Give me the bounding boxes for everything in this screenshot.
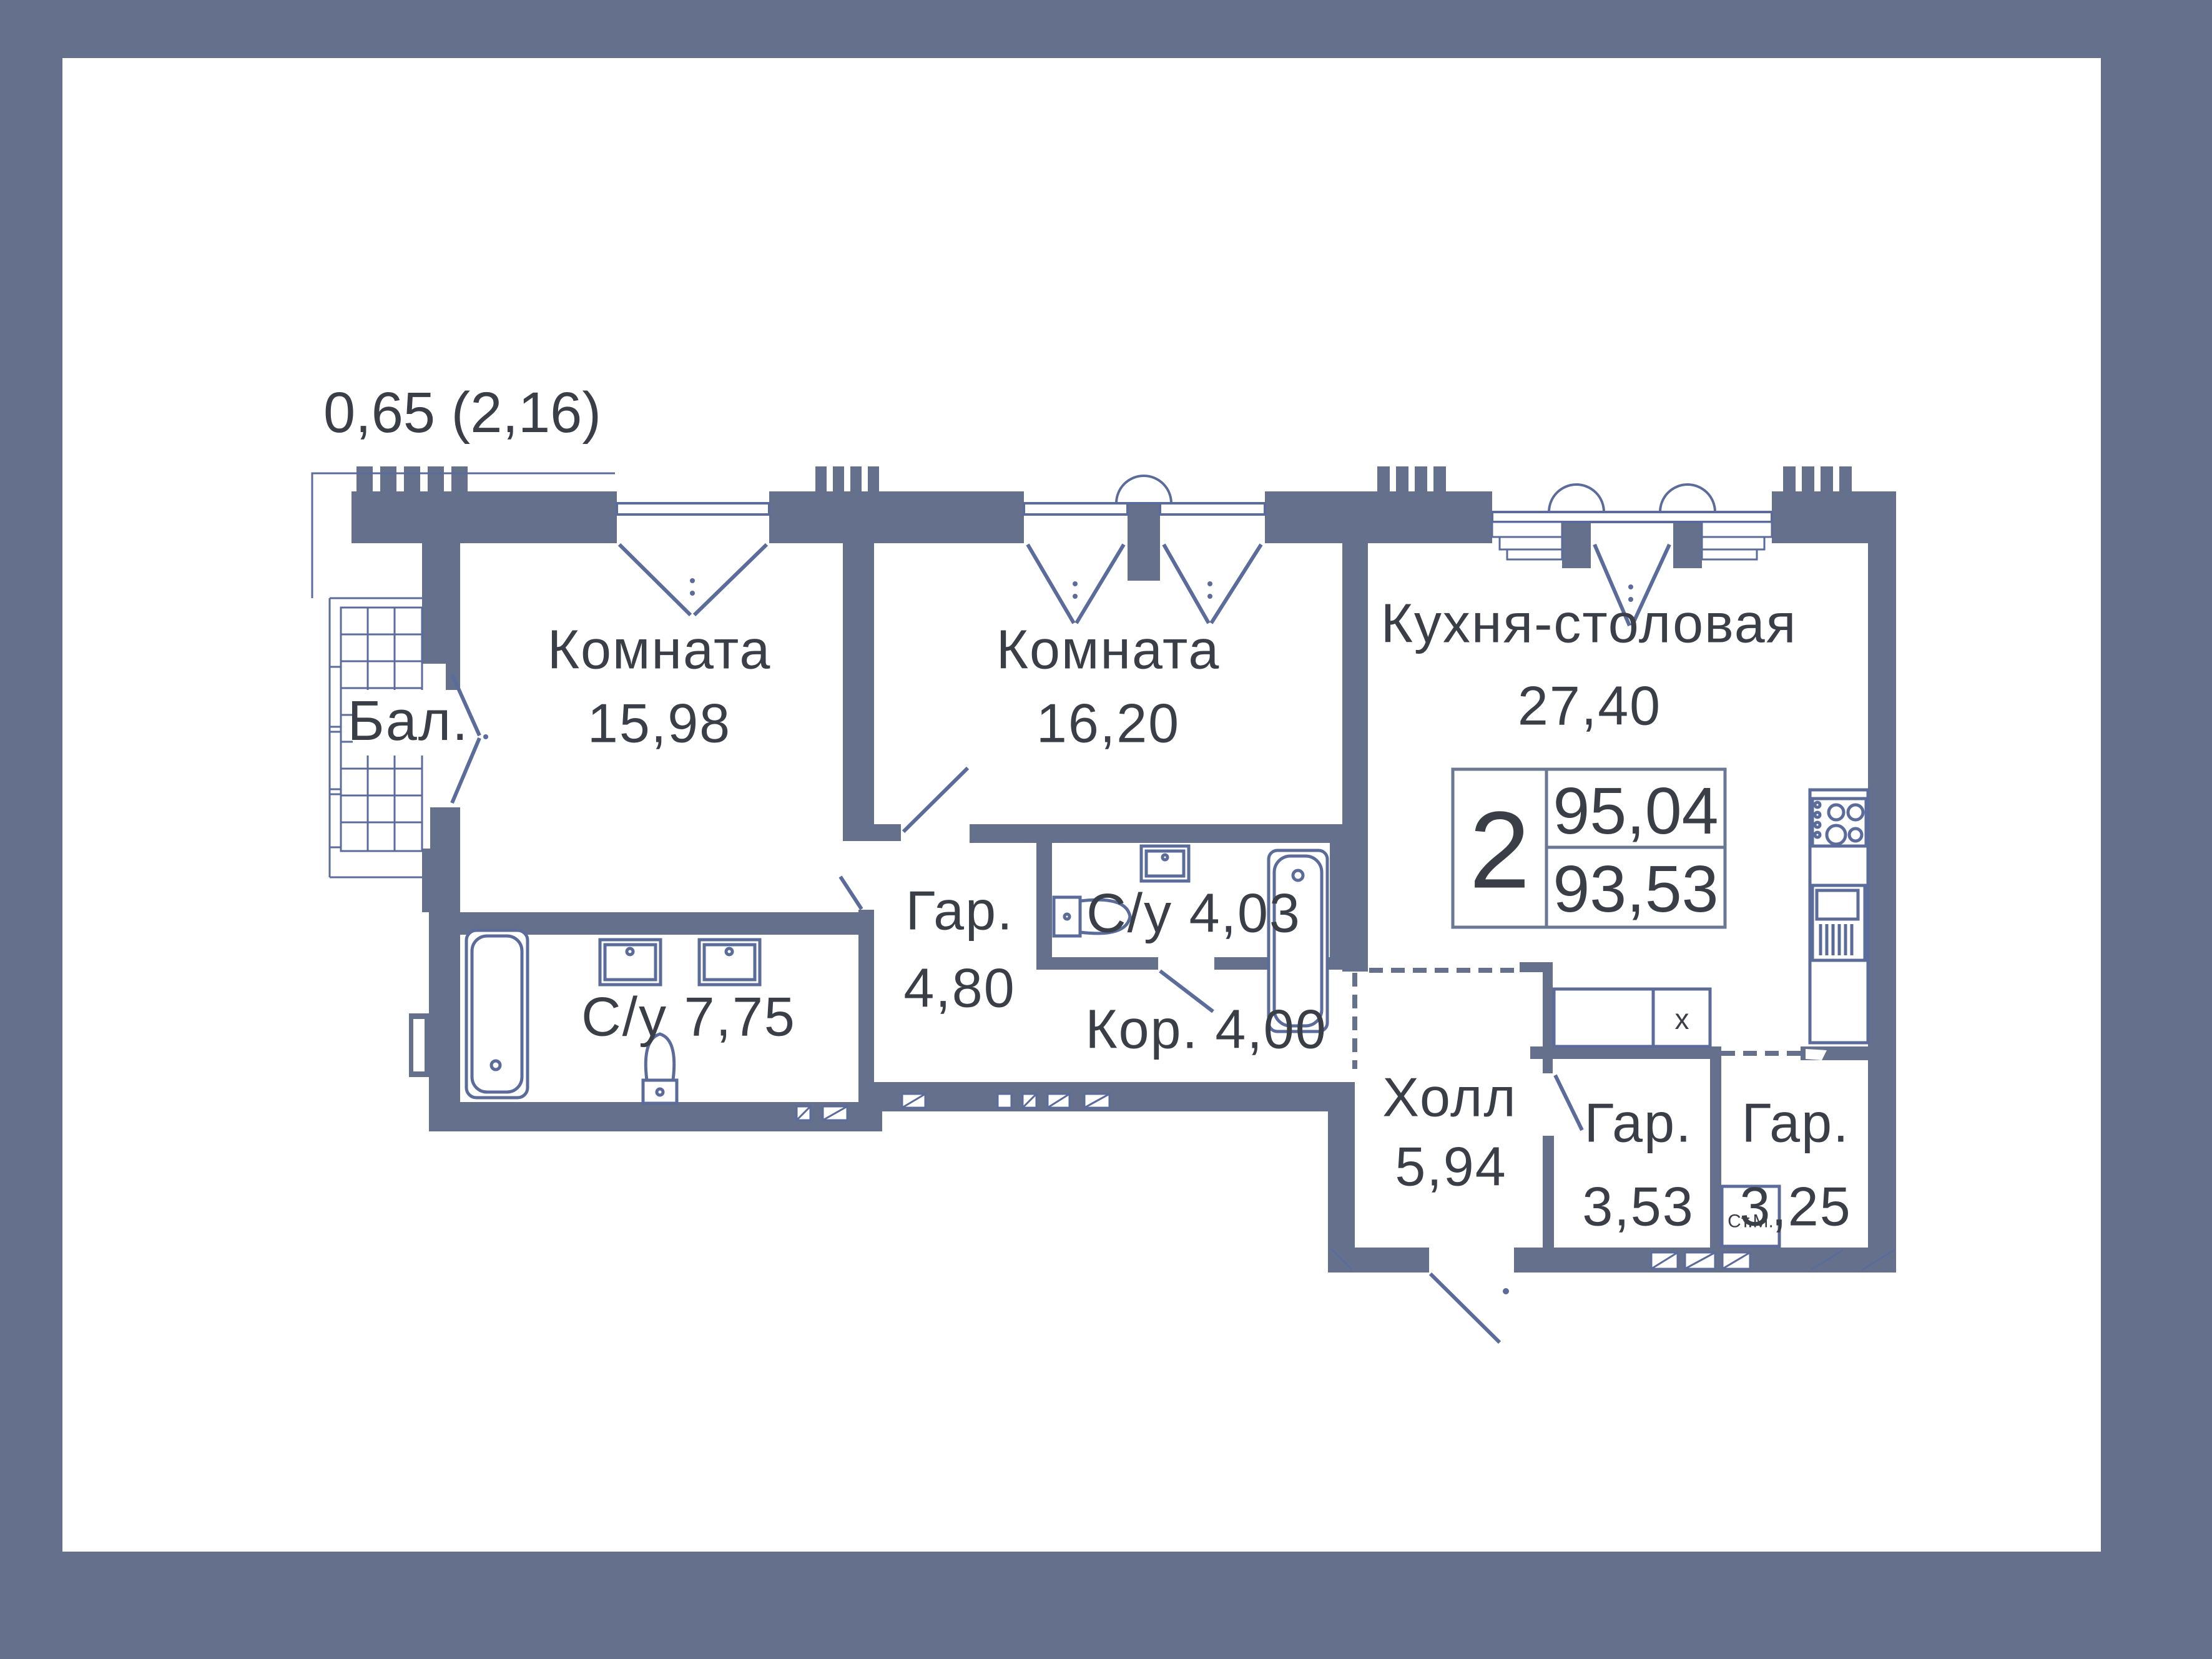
floor-plan-page: 2 95,04 93,53 0,65 (2,16) Бал. Комната 1…: [0, 0, 2212, 1659]
stat-living-area: 93,53: [1553, 852, 1718, 926]
balcony-label: Бал.: [348, 690, 469, 752]
floor-plan-canvas: 2 95,04 93,53 0,65 (2,16) Бал. Комната 1…: [0, 0, 2212, 1659]
bath-large-label: С/у 7,75: [581, 986, 796, 1048]
stat-total-area: 95,04: [1553, 774, 1718, 848]
bathtub-icon: [466, 930, 528, 1098]
room1-label: Комната: [548, 619, 772, 681]
kitchen-area: 27,40: [1518, 675, 1661, 737]
room2-label: Комната: [996, 619, 1221, 681]
kitchen-label: Кухня-столовая: [1381, 593, 1797, 654]
window-room1: [617, 503, 769, 514]
wardrobe3-label: Гар.: [1741, 1092, 1849, 1154]
wardrobe1-label: Гар.: [905, 880, 1013, 942]
hall-area: 5,94: [1395, 1136, 1507, 1198]
wardrobe2-label: Гар.: [1584, 1092, 1692, 1154]
room1-area: 15,98: [587, 692, 731, 754]
balcony-coef-annotation: 0,65 (2,16): [323, 381, 601, 445]
window-room2-right: [1160, 503, 1265, 514]
stat-box: 2 95,04 93,53: [1453, 769, 1725, 927]
entrance-door-dot: [1503, 1288, 1509, 1294]
closet-x-marker: x: [1675, 1003, 1689, 1035]
stat-rooms-count: 2: [1469, 790, 1530, 912]
window-room2-left: [1024, 503, 1128, 514]
sink-icon: [699, 940, 760, 985]
room2-area: 16,20: [1036, 692, 1180, 754]
hall-label: Холл: [1382, 1066, 1516, 1128]
washing-machine-label: Ст.М.: [1728, 1211, 1774, 1232]
kitchen-fixtures: [1810, 790, 1868, 1043]
corridor-label: Кор. 4,00: [1085, 998, 1327, 1060]
toilet-icon: [1054, 897, 1080, 936]
wardrobe2-area: 3,53: [1582, 1176, 1694, 1238]
window-kitchen: [1492, 512, 1772, 522]
wardrobe1-area: 4,80: [903, 957, 1015, 1019]
sink-icon: [600, 940, 661, 985]
bath-small-label: С/у 4,03: [1086, 882, 1301, 944]
